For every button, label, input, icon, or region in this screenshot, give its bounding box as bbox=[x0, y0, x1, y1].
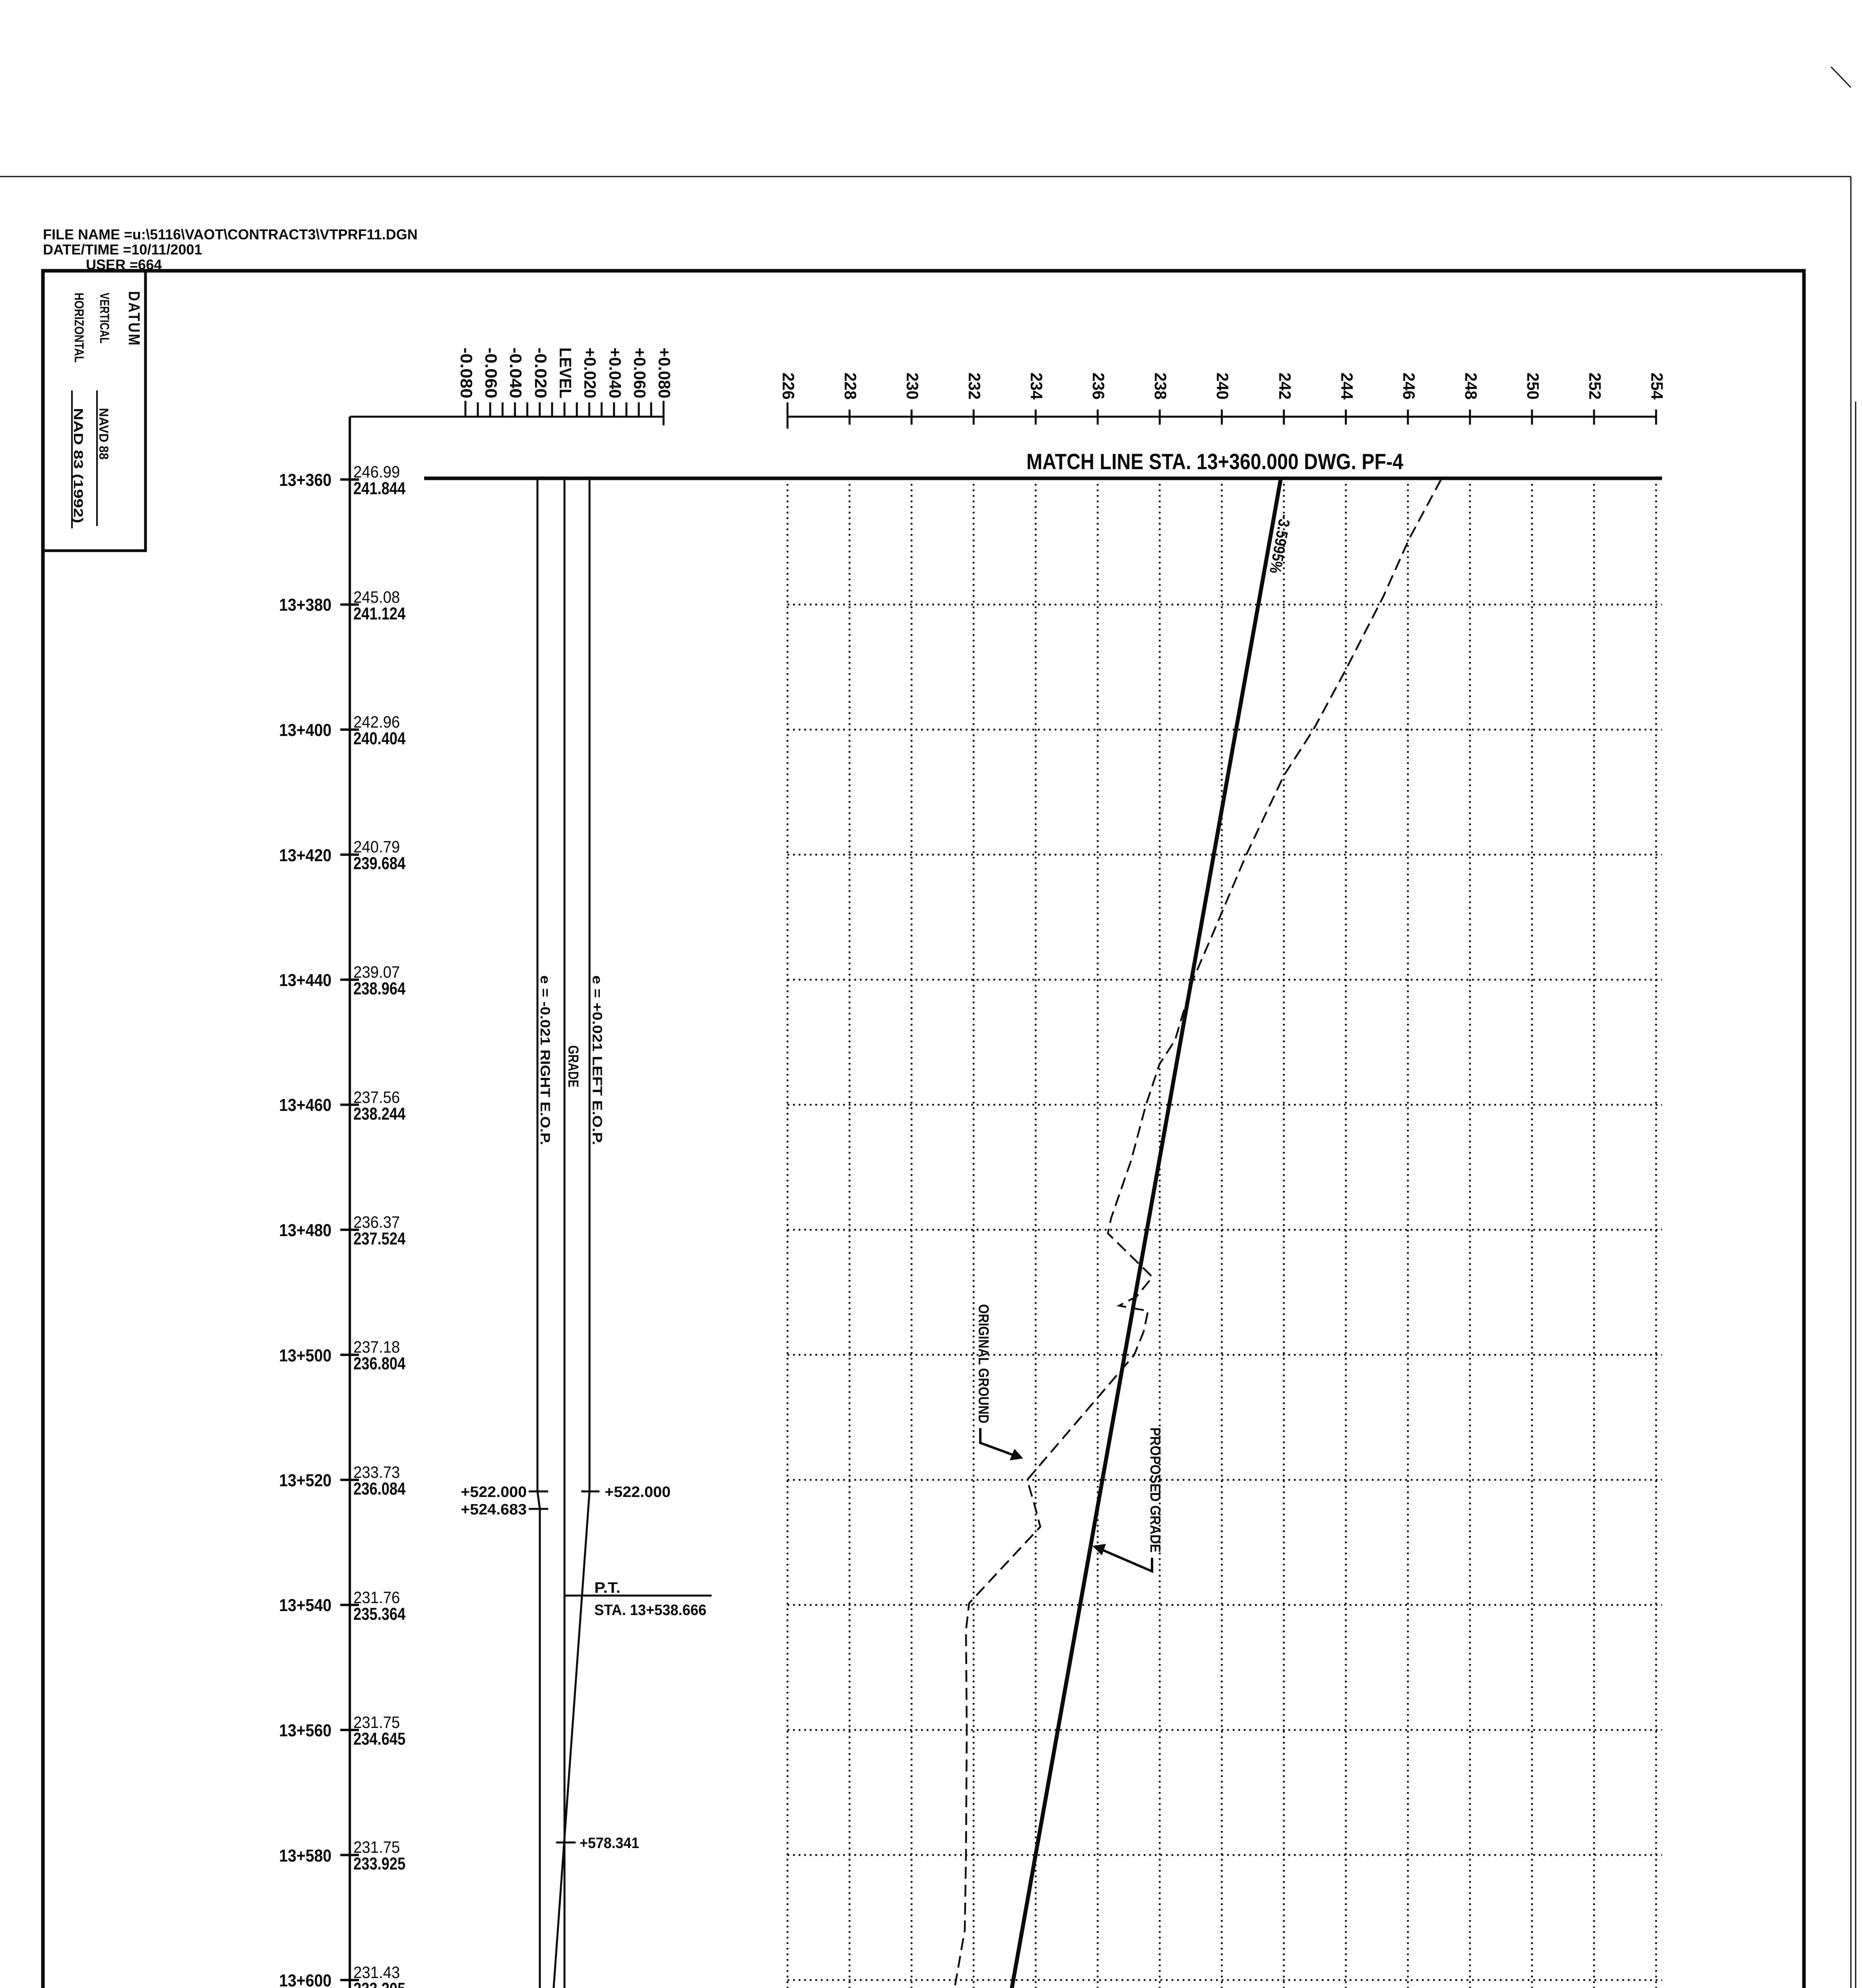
svg-text:228: 228 bbox=[841, 373, 860, 400]
svg-text:234: 234 bbox=[1027, 373, 1046, 400]
svg-text:248: 248 bbox=[1462, 373, 1480, 400]
svg-text:231.43: 231.43 bbox=[353, 1963, 400, 1982]
svg-text:e = +0.021 LEFT E.O.P.: e = +0.021 LEFT E.O.P. bbox=[590, 975, 605, 1145]
svg-text:238.964: 238.964 bbox=[353, 979, 405, 998]
svg-text:-0.040: -0.040 bbox=[506, 348, 525, 398]
svg-text:VERTICAL: VERTICAL bbox=[97, 293, 112, 344]
svg-text:+0.020: +0.020 bbox=[581, 348, 599, 398]
svg-text:238: 238 bbox=[1151, 373, 1170, 400]
svg-text:245.08: 245.08 bbox=[353, 588, 400, 606]
svg-text:13+460: 13+460 bbox=[279, 1095, 332, 1115]
svg-text:241.124: 241.124 bbox=[353, 604, 405, 623]
svg-text:LEVEL: LEVEL bbox=[556, 348, 575, 398]
svg-text:233.925: 233.925 bbox=[353, 1854, 405, 1873]
svg-text:e = -0.021 RIGHT E.O.P.: e = -0.021 RIGHT E.O.P. bbox=[537, 975, 553, 1145]
svg-text:231.75: 231.75 bbox=[353, 1713, 400, 1732]
svg-text:DATUM: DATUM bbox=[125, 291, 143, 347]
svg-text:-0.060: -0.060 bbox=[482, 348, 500, 398]
svg-text:240.79: 240.79 bbox=[353, 837, 400, 856]
svg-text:13+540: 13+540 bbox=[279, 1596, 332, 1615]
svg-text:+0.040: +0.040 bbox=[606, 348, 625, 398]
svg-text:246.99: 246.99 bbox=[353, 462, 400, 481]
svg-text:STA. 13+538.666: STA. 13+538.666 bbox=[594, 1602, 706, 1619]
svg-text:+522.000: +522.000 bbox=[605, 1484, 671, 1501]
svg-text:231.76: 231.76 bbox=[353, 1588, 400, 1607]
svg-text:13+480: 13+480 bbox=[279, 1221, 332, 1240]
svg-text:242: 242 bbox=[1276, 373, 1294, 400]
svg-text:13+380: 13+380 bbox=[279, 595, 332, 615]
svg-text:233.205: 233.205 bbox=[353, 1979, 405, 1988]
svg-text:13+400: 13+400 bbox=[279, 720, 332, 740]
svg-text:236.084: 236.084 bbox=[353, 1479, 405, 1499]
svg-text:226: 226 bbox=[779, 373, 798, 400]
svg-text:240: 240 bbox=[1213, 373, 1232, 400]
svg-text:P.T.: P.T. bbox=[594, 1580, 621, 1596]
svg-text:234.645: 234.645 bbox=[353, 1729, 405, 1749]
svg-text:241.844: 241.844 bbox=[353, 479, 405, 498]
svg-text:+578.341: +578.341 bbox=[580, 1835, 639, 1852]
svg-text:236: 236 bbox=[1089, 373, 1108, 400]
svg-text:+0.080: +0.080 bbox=[655, 348, 674, 398]
svg-text:231.75: 231.75 bbox=[353, 1838, 400, 1856]
svg-text:-0.020: -0.020 bbox=[531, 348, 550, 398]
svg-text:13+560: 13+560 bbox=[279, 1721, 332, 1740]
svg-text:ORIGINAL GROUND: ORIGINAL GROUND bbox=[976, 1304, 992, 1423]
svg-text:242.96: 242.96 bbox=[353, 712, 400, 731]
svg-text:PROPOSED GRADE: PROPOSED GRADE bbox=[1147, 1427, 1164, 1553]
svg-text:246: 246 bbox=[1400, 373, 1418, 400]
svg-text:232: 232 bbox=[965, 373, 984, 400]
svg-text:DATE/TIME =10/11/2001: DATE/TIME =10/11/2001 bbox=[43, 241, 202, 258]
svg-text:254: 254 bbox=[1648, 373, 1666, 400]
svg-text:237.524: 237.524 bbox=[353, 1229, 405, 1248]
svg-text:NAVD 88: NAVD 88 bbox=[97, 408, 111, 460]
svg-text:13+420: 13+420 bbox=[279, 846, 332, 865]
svg-text:230: 230 bbox=[903, 373, 922, 400]
svg-text:13+440: 13+440 bbox=[279, 971, 332, 990]
svg-text:13+520: 13+520 bbox=[279, 1471, 332, 1490]
svg-text:+0.060: +0.060 bbox=[630, 348, 649, 398]
svg-text:235.364: 235.364 bbox=[353, 1604, 405, 1624]
svg-text:MATCH LINE STA. 13+360.000 DWG: MATCH LINE STA. 13+360.000 DWG. PF-4 bbox=[1026, 449, 1403, 474]
svg-text:244: 244 bbox=[1338, 373, 1356, 400]
svg-text:13+600: 13+600 bbox=[279, 1971, 332, 1988]
svg-text:252: 252 bbox=[1586, 373, 1604, 400]
svg-text:FILE NAME =u:\5116\VAOT\CONTRA: FILE NAME =u:\5116\VAOT\CONTRACT3\VTPRF1… bbox=[43, 226, 418, 243]
svg-text:240.404: 240.404 bbox=[353, 729, 405, 748]
svg-text:+524.683: +524.683 bbox=[461, 1501, 527, 1518]
svg-text:GRADE: GRADE bbox=[565, 1045, 582, 1087]
svg-text:237.56: 237.56 bbox=[353, 1088, 400, 1107]
svg-text:+522.000: +522.000 bbox=[461, 1484, 527, 1501]
svg-text:239.07: 239.07 bbox=[353, 963, 400, 981]
svg-text:239.684: 239.684 bbox=[353, 854, 405, 873]
svg-text:13+360: 13+360 bbox=[279, 470, 332, 490]
svg-text:HORIZONTAL: HORIZONTAL bbox=[72, 293, 86, 363]
svg-text:250: 250 bbox=[1524, 373, 1542, 400]
svg-text:236.37: 236.37 bbox=[353, 1213, 400, 1231]
svg-text:236.804: 236.804 bbox=[353, 1354, 405, 1373]
svg-text:NAD 83 (1992): NAD 83 (1992) bbox=[71, 408, 85, 523]
svg-text:233.73: 233.73 bbox=[353, 1463, 400, 1481]
svg-text:-0.080: -0.080 bbox=[457, 348, 476, 398]
svg-text:13+580: 13+580 bbox=[279, 1846, 332, 1866]
svg-text:237.18: 237.18 bbox=[353, 1338, 400, 1356]
svg-text:238.244: 238.244 bbox=[353, 1104, 405, 1124]
svg-text:13+500: 13+500 bbox=[279, 1346, 332, 1365]
